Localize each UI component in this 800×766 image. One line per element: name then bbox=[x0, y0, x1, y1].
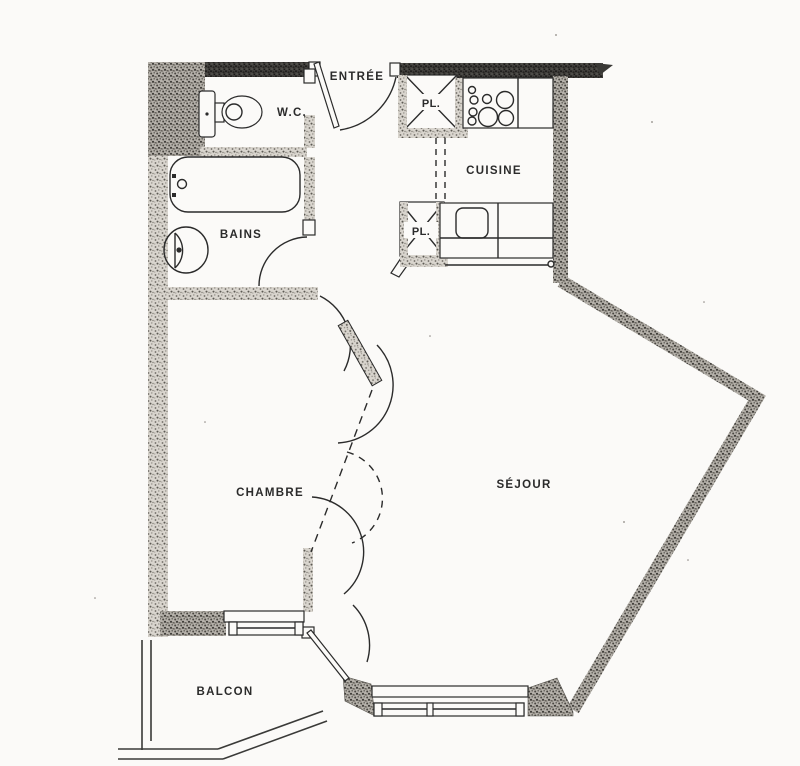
label-wc: W.C. bbox=[277, 107, 307, 119]
closet-top: PL. bbox=[398, 75, 468, 138]
closet-bottom-label: PL. bbox=[412, 226, 430, 238]
apartment-floor-plan: PL. PL. bbox=[0, 0, 800, 766]
label-sejour: SÉJOUR bbox=[496, 478, 551, 491]
kitchen-counter-sink-icon bbox=[440, 203, 554, 267]
label-entree: ENTRÉE bbox=[330, 70, 384, 83]
stove-icon bbox=[463, 78, 553, 128]
bains-right-wall bbox=[304, 157, 315, 221]
corner-wall-block bbox=[148, 62, 205, 156]
label-balcon: BALCON bbox=[197, 686, 254, 698]
wc-door-jamb bbox=[304, 69, 315, 83]
bains-door-jamb bbox=[303, 220, 315, 235]
closet-top-bottom-wall bbox=[398, 128, 468, 138]
label-cuisine: CUISINE bbox=[466, 165, 522, 177]
entry-right-jamb bbox=[390, 63, 400, 76]
label-chambre: CHAMBRE bbox=[236, 487, 304, 499]
closet-top-left-wall bbox=[398, 75, 407, 132]
wc-bains-partition-wall bbox=[200, 147, 307, 157]
scanned-floor-plan-page: PL. PL. bbox=[0, 0, 800, 766]
closet-top-label: PL. bbox=[422, 98, 440, 110]
wc-right-wall bbox=[304, 115, 315, 148]
kitchen-right-wall bbox=[553, 76, 568, 283]
label-bains: BAINS bbox=[220, 229, 262, 241]
left-exterior-wall bbox=[148, 156, 168, 637]
chambre-bottom-wall bbox=[160, 611, 226, 636]
bains-bottom-wall bbox=[148, 287, 318, 300]
chambre-window bbox=[224, 611, 304, 635]
partition-pier-wall bbox=[303, 548, 313, 612]
